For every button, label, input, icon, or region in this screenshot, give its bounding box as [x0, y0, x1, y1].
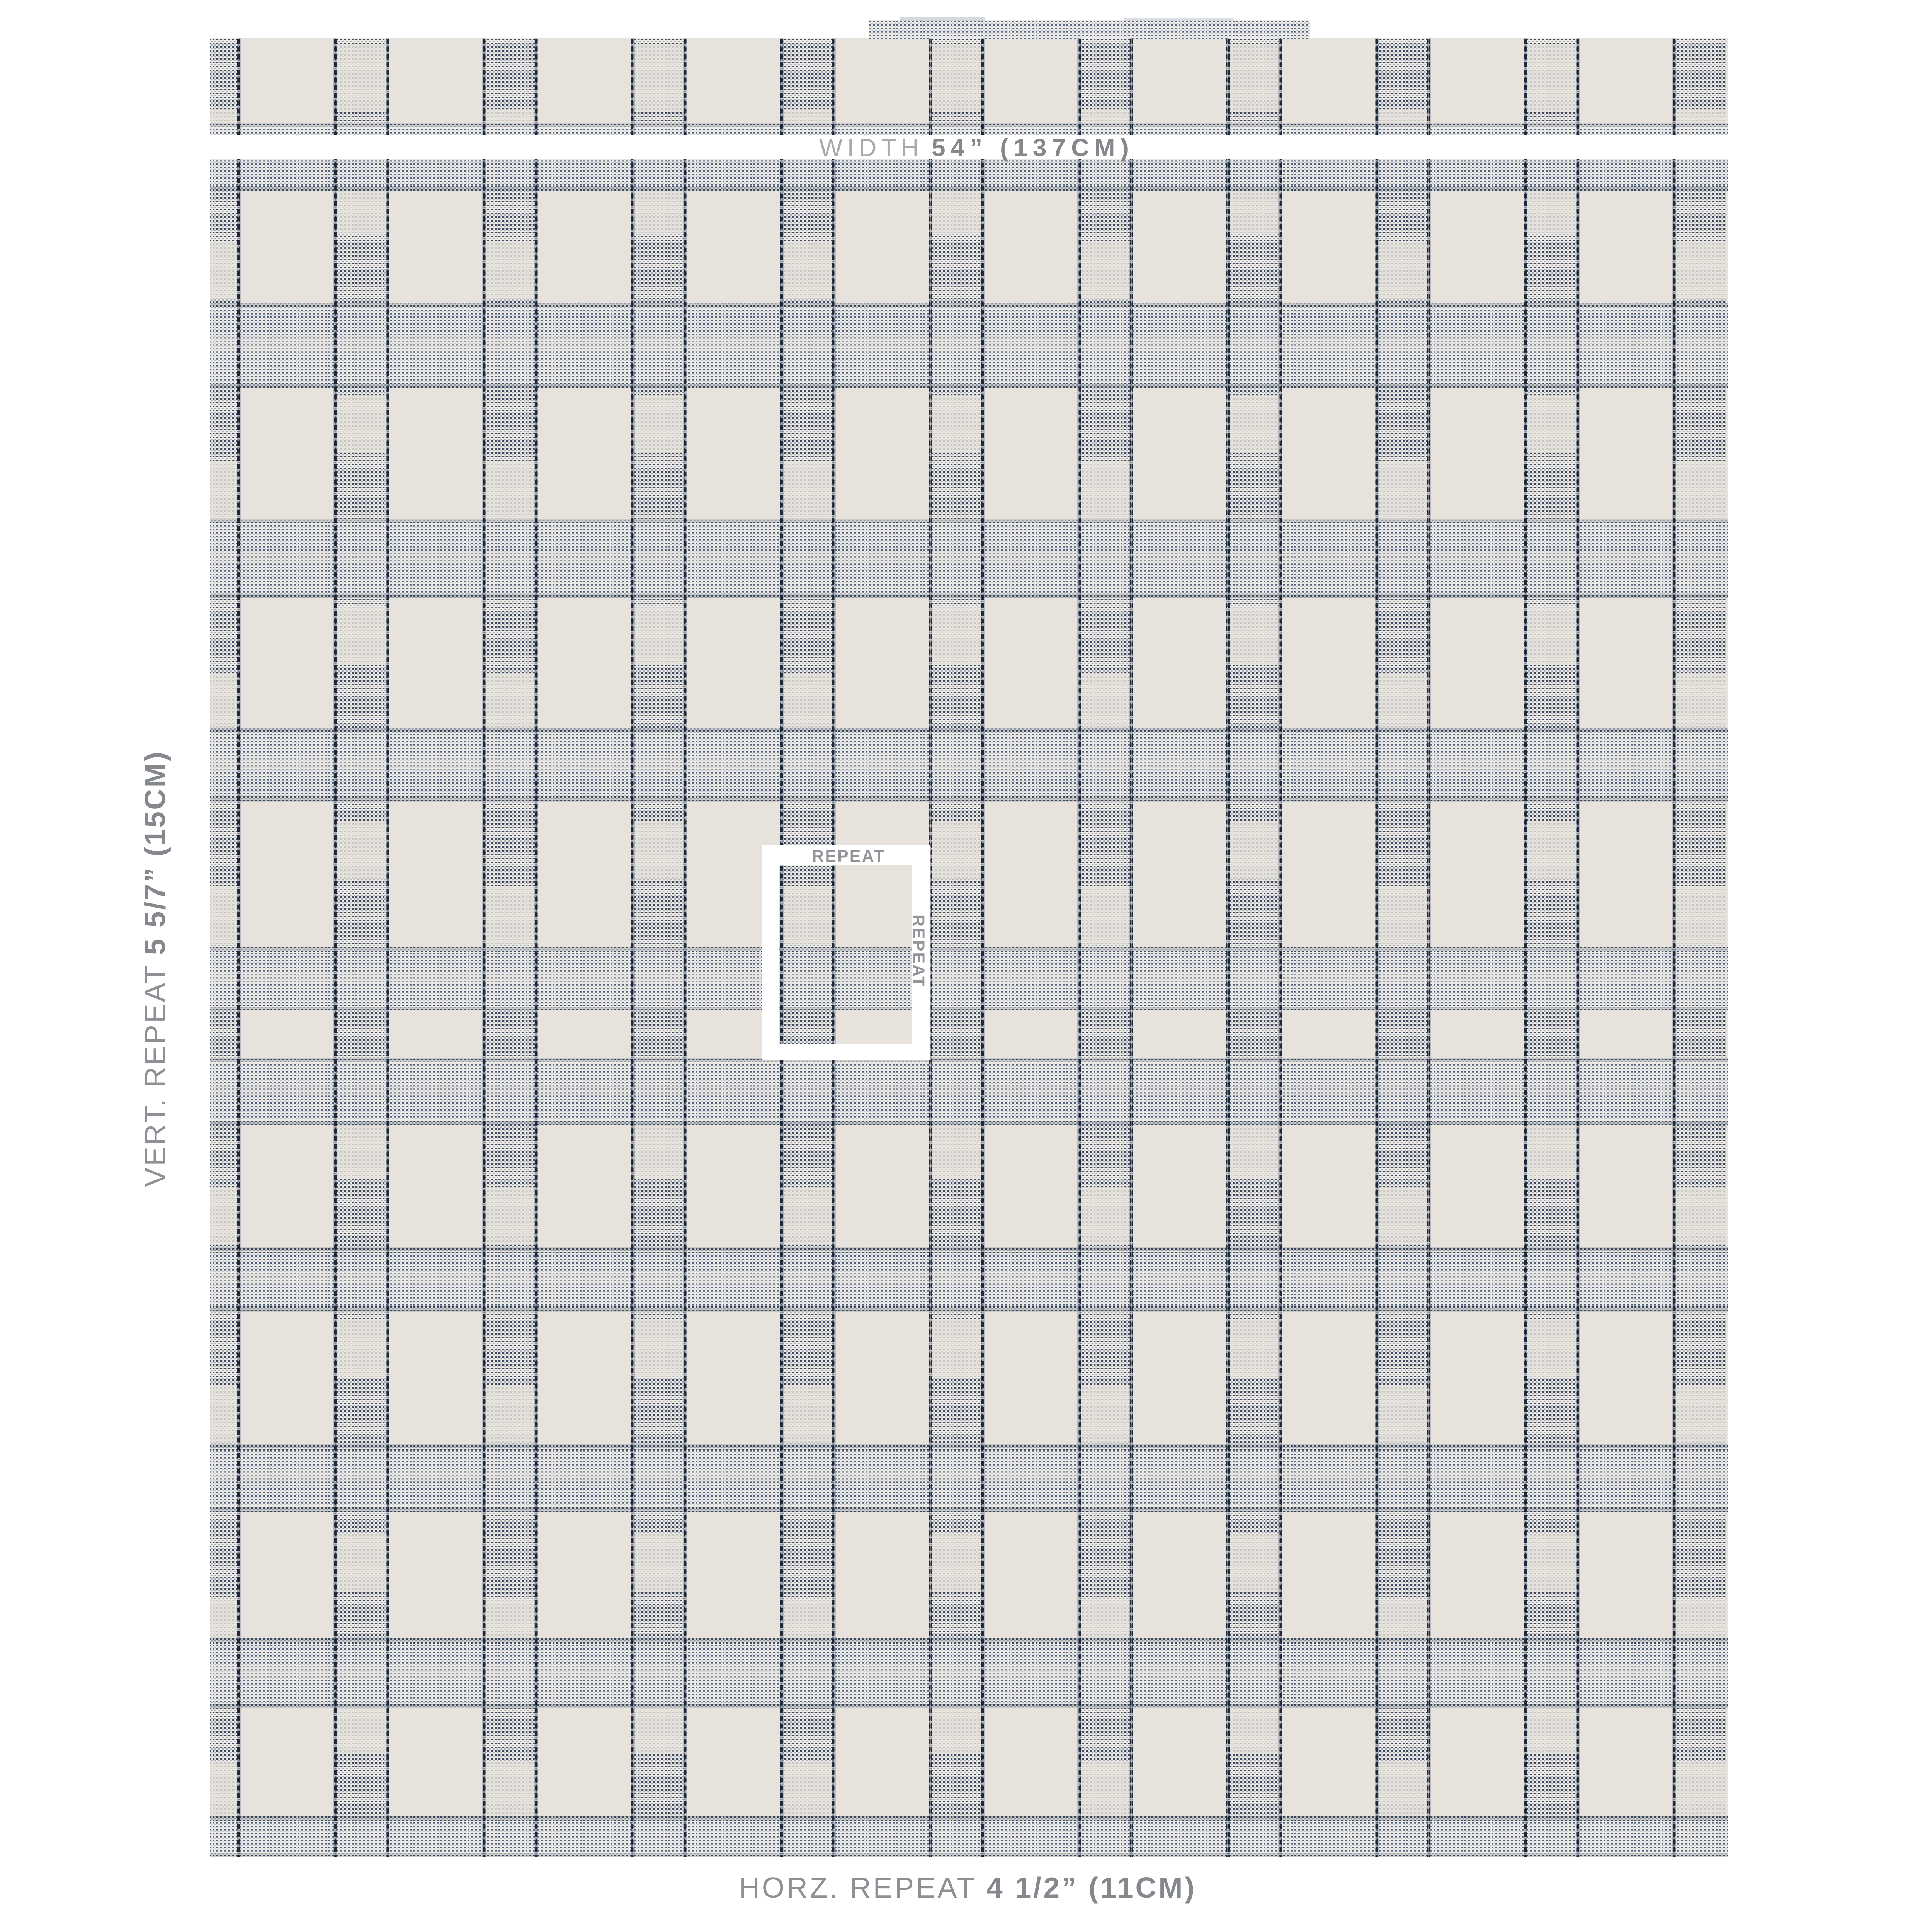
svg-text:WIDTH: WIDTH — [819, 134, 923, 162]
svg-text:HORZ. REPEAT 4 1/2” (11CM): HORZ. REPEAT 4 1/2” (11CM) — [739, 1871, 1197, 1904]
svg-text:VERT. REPEAT 5 5/7” (15CM): VERT. REPEAT 5 5/7” (15CM) — [139, 750, 171, 1187]
svg-text:REPEAT: REPEAT — [812, 847, 885, 866]
svg-text:54” (137CM): 54” (137CM) — [932, 134, 1134, 162]
svg-text:REPEAT: REPEAT — [909, 915, 928, 988]
